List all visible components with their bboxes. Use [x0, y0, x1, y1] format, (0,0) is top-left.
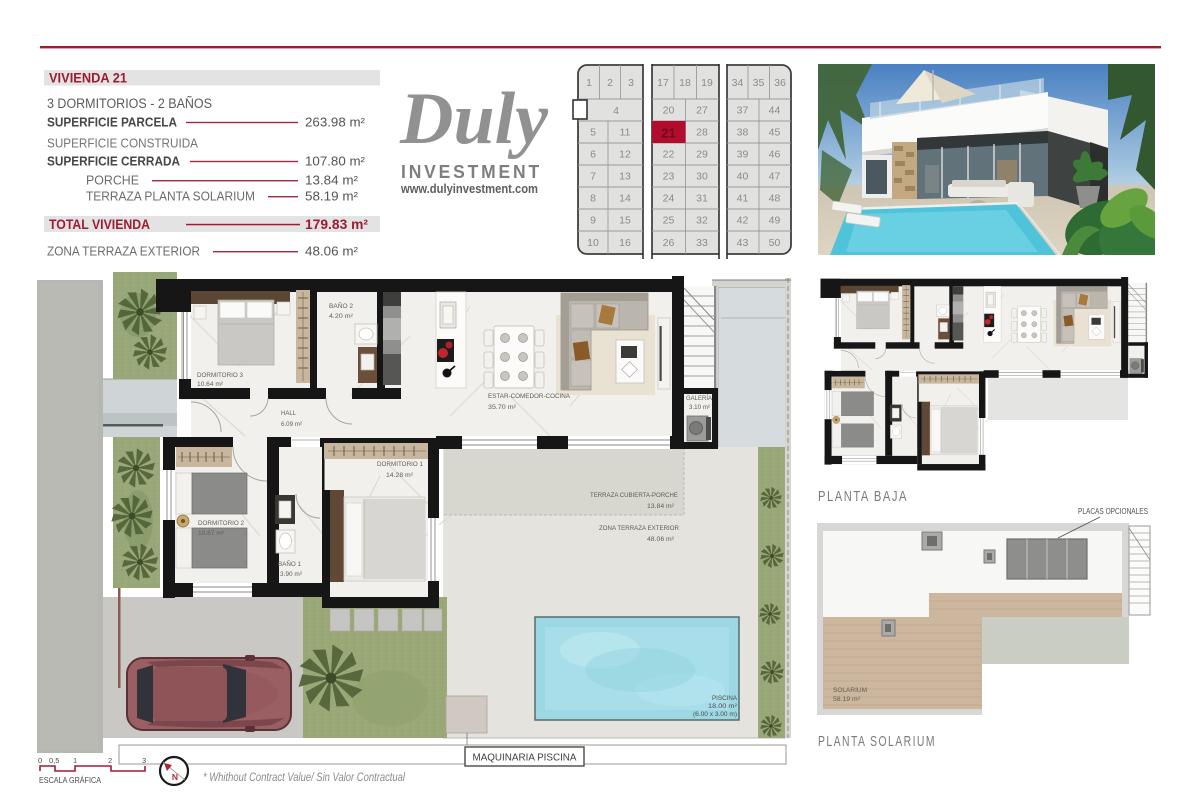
svg-text:10: 10	[587, 237, 599, 249]
svg-text:VIVIENDA 21: VIVIENDA 21	[49, 71, 127, 86]
svg-text:PLANTA SOLARIUM: PLANTA SOLARIUM	[818, 734, 936, 750]
svg-text:INVESTMENT: INVESTMENT	[401, 161, 542, 182]
svg-text:PISCINA: PISCINA	[712, 695, 738, 702]
svg-text:10.87 m²: 10.87 m²	[198, 530, 225, 537]
svg-text:18: 18	[679, 77, 691, 89]
svg-text:TERRAZA PLANTA SOLARIUM: TERRAZA PLANTA SOLARIUM	[86, 189, 255, 204]
svg-text:0,5: 0,5	[49, 756, 59, 765]
svg-text:BAÑO 1: BAÑO 1	[278, 559, 301, 568]
svg-text:13: 13	[619, 171, 631, 183]
svg-text:45: 45	[769, 127, 781, 139]
svg-text:10.64 m²: 10.64 m²	[197, 381, 224, 388]
svg-text:SOLARIUM: SOLARIUM	[833, 687, 867, 694]
svg-text:ESCALA GRÁFICA: ESCALA GRÁFICA	[39, 776, 102, 785]
svg-text:14.28 m²: 14.28 m²	[386, 472, 414, 479]
svg-text:40: 40	[737, 171, 749, 183]
svg-text:13.84 m²: 13.84 m²	[647, 503, 675, 510]
svg-text:www.dulyinvestment.com: www.dulyinvestment.com	[400, 182, 538, 196]
svg-text:50: 50	[769, 237, 781, 249]
svg-text:14: 14	[619, 193, 631, 205]
svg-text:3: 3	[142, 756, 146, 765]
svg-text:(6.00 x 3.00 m): (6.00 x 3.00 m)	[693, 711, 737, 718]
svg-text:6: 6	[590, 149, 596, 161]
svg-text:DORMITORIO 2: DORMITORIO 2	[198, 520, 244, 527]
svg-text:33: 33	[696, 237, 708, 249]
svg-text:22: 22	[663, 149, 675, 161]
svg-text:35.70 m²: 35.70 m²	[488, 404, 517, 411]
svg-text:35: 35	[753, 77, 765, 89]
svg-text:3: 3	[628, 77, 634, 89]
svg-text:44: 44	[769, 105, 781, 117]
svg-text:4.20 m²: 4.20 m²	[329, 313, 354, 320]
svg-text:20: 20	[663, 105, 675, 117]
svg-text:16: 16	[619, 237, 631, 249]
svg-text:36: 36	[774, 77, 786, 89]
svg-text:TOTAL VIVIENDA: TOTAL VIVIENDA	[49, 217, 150, 232]
svg-text:43: 43	[737, 237, 749, 249]
svg-text:11: 11	[620, 127, 631, 139]
svg-text:3.90 m²: 3.90 m²	[280, 571, 303, 578]
svg-text:18.00 m²: 18.00 m²	[708, 703, 738, 710]
svg-text:2: 2	[108, 756, 112, 765]
svg-text:DORMITORIO 1: DORMITORIO 1	[377, 461, 423, 468]
svg-text:41: 41	[737, 193, 749, 205]
svg-text:263.98 m²: 263.98 m²	[305, 115, 366, 130]
svg-text:107.80 m²: 107.80 m²	[305, 154, 366, 169]
svg-text:DORMITORIO 3: DORMITORIO 3	[197, 372, 243, 379]
svg-text:0: 0	[38, 756, 42, 765]
svg-text:39: 39	[737, 149, 749, 161]
svg-text:34: 34	[732, 77, 744, 89]
svg-text:58.19 m²: 58.19 m²	[305, 189, 359, 204]
svg-text:25: 25	[663, 215, 675, 227]
svg-text:4: 4	[613, 105, 619, 117]
svg-text:3 DORMITORIOS - 2 BAÑOS: 3 DORMITORIOS - 2 BAÑOS	[47, 96, 212, 111]
svg-text:48: 48	[769, 193, 781, 205]
svg-text:PLANTA BAJA: PLANTA BAJA	[818, 489, 908, 505]
svg-text:30: 30	[696, 171, 708, 183]
svg-text:ZONA TERRAZA EXTERIOR: ZONA TERRAZA EXTERIOR	[599, 525, 679, 532]
svg-text:BAÑO 2: BAÑO 2	[329, 301, 353, 310]
svg-text:3.10 m²: 3.10 m²	[689, 404, 711, 411]
svg-text:HALL: HALL	[281, 410, 296, 417]
svg-text:N: N	[172, 772, 178, 782]
svg-text:* Whithout Contract Value/ Si: * Whithout Contract Value/ Sin Valor Con…	[203, 772, 405, 784]
svg-text:42: 42	[737, 215, 749, 227]
svg-text:SUPERFICIE CERRADA: SUPERFICIE CERRADA	[47, 154, 181, 169]
svg-text:49: 49	[769, 215, 781, 227]
svg-text:27: 27	[696, 105, 708, 117]
svg-text:28: 28	[696, 127, 708, 139]
svg-text:58.19 m²: 58.19 m²	[833, 696, 861, 703]
svg-text:PLACAS OPCIONALES: PLACAS OPCIONALES	[1078, 506, 1148, 516]
svg-text:8: 8	[590, 193, 596, 205]
svg-text:SUPERFICIE PARCELA: SUPERFICIE PARCELA	[47, 115, 178, 130]
svg-text:13.84 m²: 13.84 m²	[305, 173, 359, 188]
svg-text:PORCHE: PORCHE	[86, 173, 139, 188]
svg-text:32: 32	[696, 215, 708, 227]
svg-text:MAQUINARIA PISCINA: MAQUINARIA PISCINA	[473, 752, 577, 764]
svg-text:7: 7	[590, 171, 596, 183]
svg-text:26: 26	[663, 237, 675, 249]
svg-text:31: 31	[696, 193, 708, 205]
svg-text:21: 21	[661, 126, 675, 141]
svg-text:23: 23	[663, 171, 675, 183]
svg-text:46: 46	[769, 149, 781, 161]
svg-text:1: 1	[586, 77, 592, 89]
svg-text:TERRAZA CUBIERTA-PORCHE: TERRAZA CUBIERTA-PORCHE	[590, 492, 679, 499]
svg-text:ESTAR-COMEDOR-COCINA: ESTAR-COMEDOR-COCINA	[488, 393, 571, 400]
svg-text:48.06 m²: 48.06 m²	[647, 536, 675, 543]
svg-text:48.06 m²: 48.06 m²	[305, 244, 359, 259]
svg-text:SUPERFICIE CONSTRUIDA: SUPERFICIE CONSTRUIDA	[47, 136, 198, 151]
svg-text:37: 37	[737, 105, 749, 117]
svg-text:Duly: Duly	[399, 78, 549, 160]
svg-text:38: 38	[737, 127, 749, 139]
svg-text:2: 2	[607, 77, 613, 89]
svg-text:17: 17	[657, 77, 669, 89]
svg-text:ZONA TERRAZA EXTERIOR: ZONA TERRAZA EXTERIOR	[47, 244, 200, 259]
svg-text:24: 24	[663, 193, 675, 205]
svg-text:47: 47	[769, 171, 781, 183]
svg-text:179.83 m²: 179.83 m²	[305, 217, 369, 232]
svg-text:5: 5	[590, 127, 596, 139]
svg-text:6.09 m²: 6.09 m²	[281, 421, 303, 428]
svg-text:29: 29	[696, 149, 708, 161]
svg-text:1: 1	[73, 756, 77, 765]
svg-text:12: 12	[619, 149, 631, 161]
svg-text:9: 9	[590, 215, 596, 227]
svg-text:19: 19	[701, 77, 713, 89]
svg-text:GALERÍA: GALERÍA	[686, 393, 713, 402]
svg-text:15: 15	[619, 215, 631, 227]
